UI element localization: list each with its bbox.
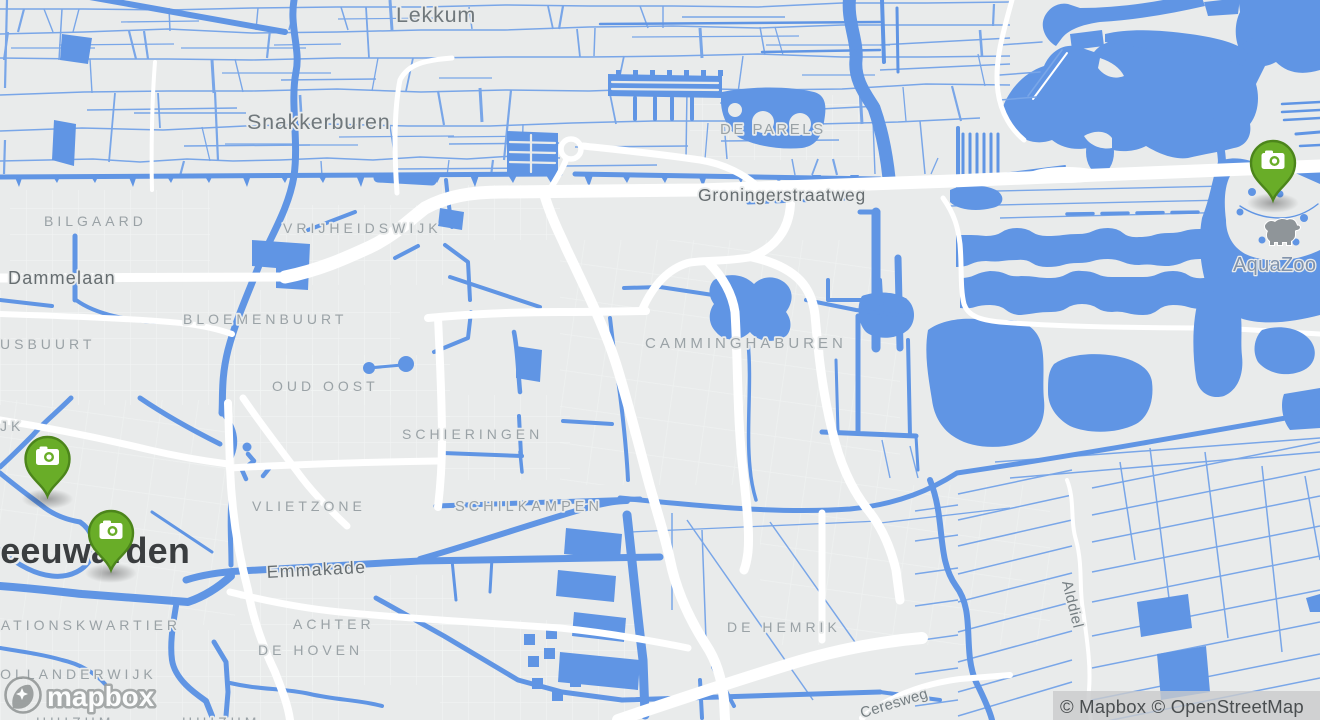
svg-text:Groningerstraatweg: Groningerstraatweg [698, 185, 866, 205]
svg-text:USBUURT: USBUURT [0, 336, 95, 352]
svg-text:BLOEMENBUURT: BLOEMENBUURT [183, 311, 347, 327]
svg-text:HUIZUM: HUIZUM [36, 714, 114, 720]
svg-text:Lekkum: Lekkum [396, 3, 476, 27]
svg-text:BILGAARD: BILGAARD [44, 213, 147, 229]
svg-text:STATIONSKWARTIER: STATIONSKWARTIER [0, 617, 181, 633]
svg-text:ACHTER: ACHTER [293, 616, 375, 632]
svg-text:DE HEMRIK: DE HEMRIK [727, 619, 841, 635]
svg-text:© Mapbox © OpenStreetMap: © Mapbox © OpenStreetMap [1060, 696, 1304, 717]
svg-text:VLIETZONE: VLIETZONE [252, 498, 366, 514]
svg-text:DE PARELS: DE PARELS [720, 121, 826, 138]
svg-text:CAMMINGHABUREN: CAMMINGHABUREN [645, 335, 847, 352]
svg-text:SCHIERINGEN: SCHIERINGEN [402, 426, 543, 442]
svg-text:JK: JK [0, 418, 24, 434]
svg-text:HOLLANDERWIJK: HOLLANDERWIJK [0, 666, 157, 682]
svg-text:OUD OOST: OUD OOST [272, 378, 379, 394]
svg-text:AquaZoo: AquaZoo [1233, 254, 1316, 276]
svg-text:SCHILKAMPEN: SCHILKAMPEN [455, 499, 603, 515]
svg-text:HUIZUM: HUIZUM [182, 714, 260, 720]
svg-text:Dammelaan: Dammelaan [8, 268, 116, 288]
svg-text:Snakkerburen: Snakkerburen [247, 110, 390, 134]
svg-text:mapbox: mapbox [47, 681, 155, 712]
svg-text:VRIJHEIDSWIJK: VRIJHEIDSWIJK [283, 220, 442, 236]
svg-text:DE HOVEN: DE HOVEN [258, 642, 363, 658]
